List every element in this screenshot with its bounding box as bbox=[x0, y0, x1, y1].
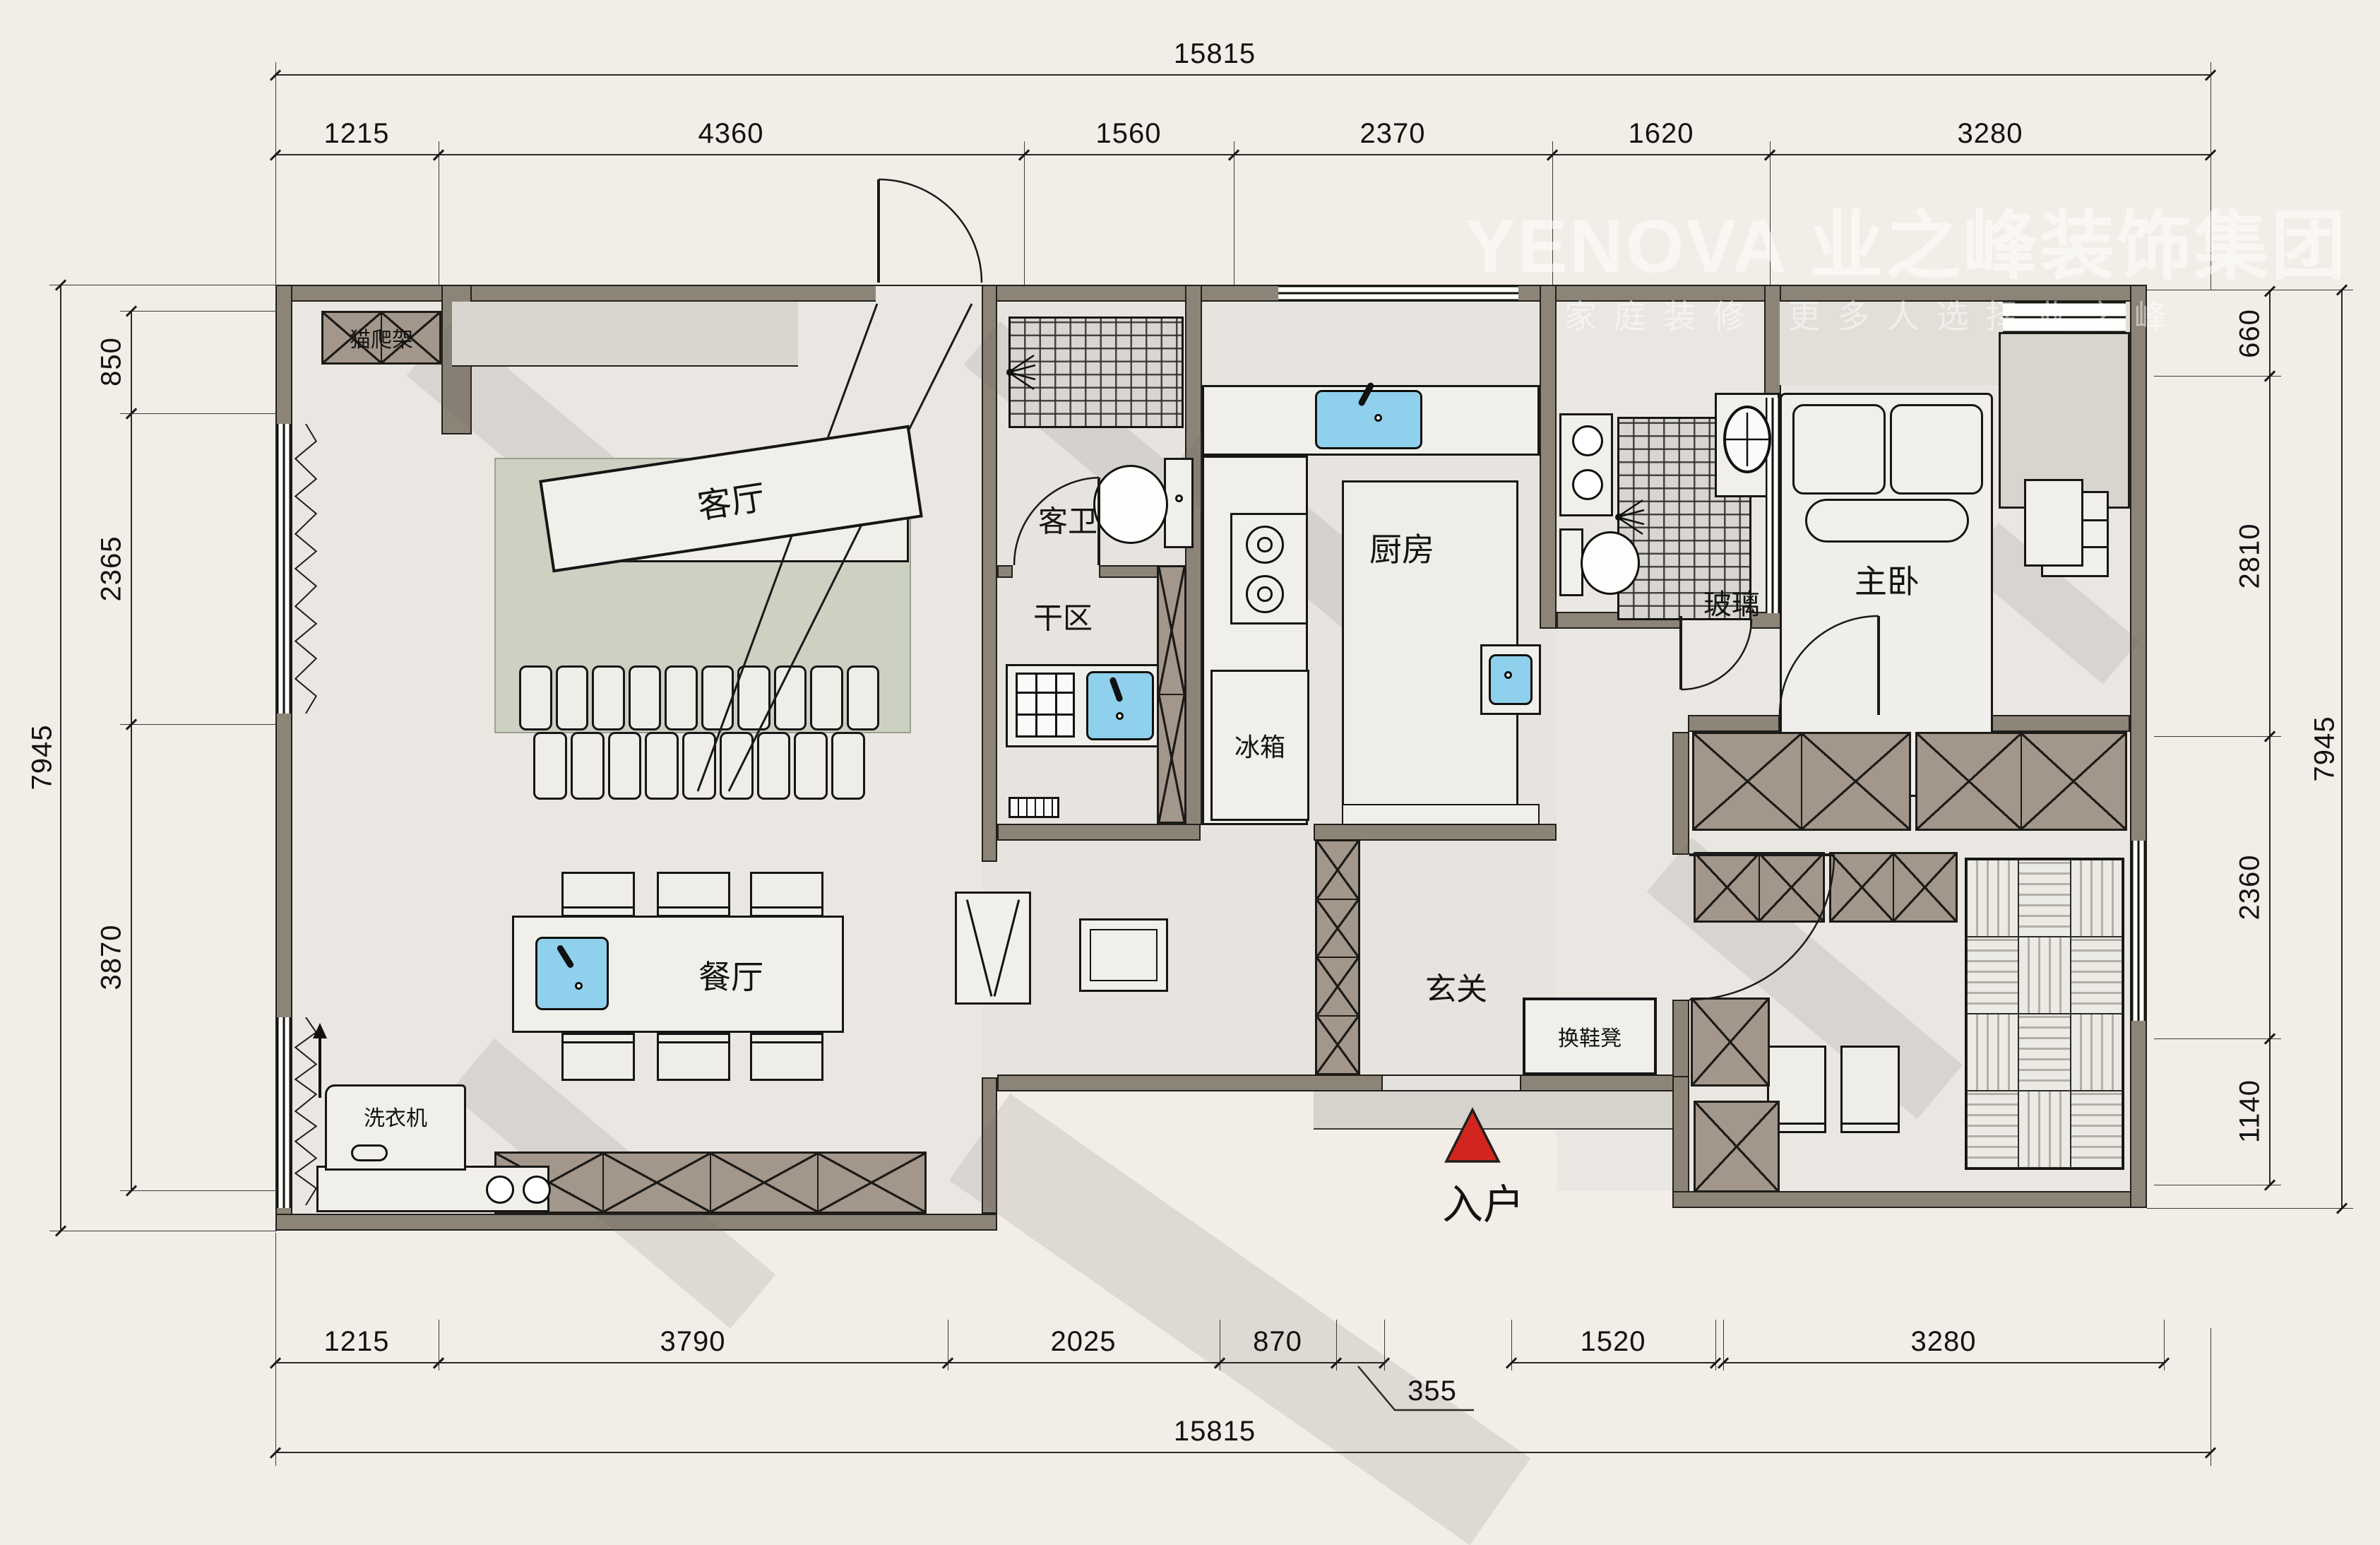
dim-line bbox=[439, 154, 1024, 155]
washer-knob bbox=[523, 1176, 551, 1204]
dim-left-0: 850 bbox=[96, 337, 128, 386]
washer-label: 洗衣机 bbox=[364, 1101, 427, 1132]
shoe-bench-label: 换鞋凳 bbox=[1558, 1021, 1622, 1052]
bed-bolster bbox=[1805, 499, 1969, 543]
dim-line bbox=[275, 154, 439, 155]
dim-left-2: 3870 bbox=[96, 925, 128, 990]
hall-cabinet-inner bbox=[1090, 929, 1158, 981]
floor-plan-page: { "watermark": { "logo": "YENOVA", "bran… bbox=[0, 0, 2380, 1496]
wall-corridor-a bbox=[997, 824, 1201, 841]
dim-line bbox=[1234, 154, 1552, 155]
dim-right-1: 2810 bbox=[2235, 523, 2266, 589]
brand-tagline: 家庭装修 更多人选择业之峰 bbox=[1564, 291, 2184, 338]
wardrobe-row2-right bbox=[1829, 852, 1958, 923]
master-bedroom-label: 主卧 bbox=[1855, 556, 1920, 603]
vanity-sink bbox=[1086, 671, 1154, 740]
dim-bottom-3: 870 bbox=[1253, 1326, 1302, 1358]
dim-line-bottom-total bbox=[275, 1452, 2211, 1453]
wall-corridor-b bbox=[1314, 824, 1557, 841]
wall-bath-kitchen bbox=[1185, 285, 1202, 825]
left-window-2 bbox=[277, 1017, 291, 1208]
dim-bottom-0: 1215 bbox=[324, 1326, 390, 1358]
floor-drain bbox=[1008, 797, 1059, 818]
foyer-cabinet bbox=[1315, 839, 1360, 1075]
ext-line bbox=[1234, 141, 1234, 287]
glass-label: 玻璃 bbox=[1703, 581, 1760, 622]
brand-tagline-text: 家庭装修 更多人选择业之峰 bbox=[1564, 298, 2184, 335]
linen-cabinet bbox=[1157, 565, 1186, 824]
hall-cabinet bbox=[1079, 918, 1168, 992]
dim-line bbox=[1552, 154, 1770, 155]
dining-chair bbox=[750, 1033, 823, 1081]
sprinkler-icon bbox=[1006, 350, 1037, 395]
master-bedroom-door bbox=[1778, 615, 1881, 718]
ext-line bbox=[2154, 376, 2281, 377]
stove-burner bbox=[1246, 575, 1284, 613]
dim-top-total: 15815 bbox=[1174, 38, 1256, 70]
ext-line bbox=[2211, 1328, 2211, 1466]
coat-closet bbox=[955, 892, 1031, 1005]
dining-chair bbox=[561, 872, 635, 917]
nightstand bbox=[2024, 479, 2083, 567]
dim-line bbox=[131, 413, 132, 724]
wall-bottom-mid-a bbox=[997, 1075, 1383, 1091]
dim-bottom-5: 3280 bbox=[1911, 1326, 1977, 1358]
brand-watermark: YENOVA 业之峰装饰集团 bbox=[1465, 185, 2348, 294]
kitchen-low-counter bbox=[1342, 804, 1540, 825]
wall-right bbox=[2130, 285, 2147, 1208]
wall-bedroom2-left-a bbox=[1672, 732, 1689, 855]
master-bath-door bbox=[1678, 612, 1756, 694]
bed-pillow bbox=[1890, 404, 1983, 495]
dining-chair bbox=[750, 872, 823, 917]
small-appliance-basin bbox=[1489, 654, 1533, 705]
guest-bath-label: 客卫 bbox=[1038, 498, 1097, 541]
dim-line bbox=[2269, 1038, 2271, 1185]
dim-line bbox=[131, 311, 132, 413]
wash-basin-icon bbox=[1720, 403, 1774, 476]
dining-sink bbox=[535, 937, 609, 1010]
wall-bedroom2-top-a bbox=[1688, 715, 1780, 732]
toilet2-tank bbox=[1559, 528, 1583, 596]
bath2-unit-dial bbox=[1572, 469, 1603, 500]
ext-line bbox=[49, 285, 277, 285]
dim-line bbox=[2269, 736, 2271, 1038]
dim-line bbox=[1770, 154, 2211, 155]
wall-step bbox=[1672, 1075, 1689, 1208]
dim-bottom-1: 3790 bbox=[660, 1326, 726, 1358]
faucet-dot-icon bbox=[575, 982, 583, 990]
kitchen-sink bbox=[1315, 390, 1422, 449]
dim-right-0: 660 bbox=[2235, 309, 2266, 358]
faucet-dot-icon bbox=[1374, 414, 1382, 422]
faucet-dot-icon bbox=[1504, 671, 1512, 679]
tatami-mat bbox=[1965, 858, 2124, 1170]
ext-line bbox=[49, 1231, 277, 1231]
dim-line-left-total bbox=[60, 285, 61, 1231]
curtain-icon bbox=[294, 424, 318, 714]
ext-line bbox=[2147, 1208, 2353, 1209]
dim-line bbox=[2269, 291, 2271, 376]
ext-line bbox=[120, 1190, 277, 1191]
dim-top-5: 3280 bbox=[1958, 118, 2023, 150]
dim-top-3: 2370 bbox=[1360, 118, 1426, 150]
faucet-dot-icon bbox=[1116, 712, 1124, 720]
ext-line bbox=[120, 724, 277, 725]
balcony-door bbox=[876, 177, 984, 285]
ext-line bbox=[275, 1233, 276, 1466]
toilet-tank bbox=[1164, 458, 1194, 548]
dim-left-total: 7945 bbox=[27, 725, 59, 791]
dim-right-total: 7945 bbox=[2309, 716, 2341, 782]
dim-line-top-total bbox=[275, 74, 2211, 76]
wardrobe-row1-left bbox=[1692, 732, 1911, 831]
brand-logo-text: YENOVA bbox=[1465, 205, 1786, 288]
stool bbox=[1840, 1046, 1900, 1133]
dining-room-label: 餐厅 bbox=[698, 952, 763, 998]
ext-line bbox=[120, 413, 277, 414]
ext-line bbox=[2154, 1038, 2281, 1039]
dim-bottom-2: 2025 bbox=[1051, 1326, 1117, 1358]
cat-tree-label: 猫爬架 bbox=[350, 322, 413, 353]
entry-threshold bbox=[1383, 1075, 1520, 1091]
dining-chair bbox=[657, 872, 730, 917]
washer-button bbox=[351, 1144, 388, 1161]
entry-label: 入户 bbox=[1442, 1171, 1524, 1231]
stove-burner bbox=[1246, 526, 1284, 564]
wall-bottom-mid-b bbox=[1520, 1075, 1689, 1091]
washing-machine: 洗衣机 bbox=[325, 1084, 466, 1171]
dim-line bbox=[1723, 1362, 2164, 1363]
bedroom2-door bbox=[1688, 853, 1836, 1002]
toilet-bowl bbox=[1093, 465, 1168, 544]
kitchen-label: 厨房 bbox=[1369, 524, 1434, 571]
vanity-drain bbox=[1016, 673, 1075, 738]
ext-line bbox=[275, 62, 276, 285]
dim-line bbox=[1511, 1362, 1715, 1363]
sprinkler-icon bbox=[1614, 495, 1646, 540]
washer-counter bbox=[316, 1166, 549, 1212]
sideboard-cabinet bbox=[494, 1152, 927, 1214]
ext-line bbox=[120, 311, 277, 312]
wardrobe-row1-right bbox=[1915, 732, 2127, 831]
dim-line bbox=[131, 724, 132, 1190]
dim-top-2: 1560 bbox=[1096, 118, 1162, 150]
sofa-cushion bbox=[519, 665, 552, 730]
wall-kitchen-bath2 bbox=[1540, 285, 1557, 629]
dry-area-label: 干区 bbox=[1033, 595, 1093, 638]
dining-chair bbox=[657, 1033, 730, 1081]
wall-bedroom2-left-b bbox=[1672, 1000, 1689, 1077]
left-window-1 bbox=[277, 424, 291, 714]
living-room-label: 客厅 bbox=[694, 469, 768, 528]
dim-line bbox=[1024, 154, 1234, 155]
shoe-bench: 换鞋凳 bbox=[1523, 998, 1657, 1075]
foyer-label: 玄关 bbox=[1425, 964, 1487, 1009]
wall-guest-bath-stub-l bbox=[997, 565, 1013, 578]
bath2-unit-dial bbox=[1572, 425, 1603, 456]
fridge-label: 冰箱 bbox=[1234, 727, 1285, 764]
entry-arrow-icon bbox=[1442, 1106, 1503, 1166]
dim-right-3: 1140 bbox=[2235, 1079, 2266, 1143]
foyer-shoe-cabinet bbox=[1691, 998, 1770, 1087]
corner-cabinet bbox=[1694, 1101, 1780, 1192]
dim-top-1: 4360 bbox=[698, 118, 764, 150]
bed-pillow bbox=[1792, 404, 1886, 495]
dim-line bbox=[948, 1362, 1220, 1363]
brand-name-text: 业之峰装饰集团 bbox=[1809, 205, 2348, 288]
toilet2-bowl bbox=[1581, 531, 1640, 595]
dim-line bbox=[275, 1362, 439, 1363]
right-window bbox=[2131, 841, 2146, 1021]
washer-knob bbox=[486, 1176, 514, 1204]
dim-right-2: 2360 bbox=[2235, 855, 2266, 921]
dim-line bbox=[2269, 376, 2271, 736]
dining-chair bbox=[561, 1033, 635, 1081]
dim-bottom-total: 15815 bbox=[1174, 1416, 1256, 1448]
dim-line bbox=[1220, 1362, 1336, 1363]
dim-line-right-total bbox=[2341, 290, 2343, 1208]
ext-line bbox=[2154, 736, 2281, 737]
dim-bottom-4: 1520 bbox=[1581, 1326, 1646, 1358]
dim-left-1: 2365 bbox=[96, 536, 128, 602]
ext-line bbox=[2154, 1185, 2281, 1185]
dim-bottom-callout: 355 bbox=[1408, 1375, 1457, 1407]
sofa-cushion bbox=[533, 732, 567, 800]
dim-top-4: 1620 bbox=[1629, 118, 1694, 150]
dim-top-0: 1215 bbox=[324, 118, 390, 150]
dim-line bbox=[439, 1362, 948, 1363]
wall-bottom-right bbox=[1672, 1191, 2147, 1208]
ext-line bbox=[439, 141, 439, 287]
toilet-flush-dot bbox=[1175, 495, 1183, 502]
ext-line bbox=[1024, 141, 1025, 287]
